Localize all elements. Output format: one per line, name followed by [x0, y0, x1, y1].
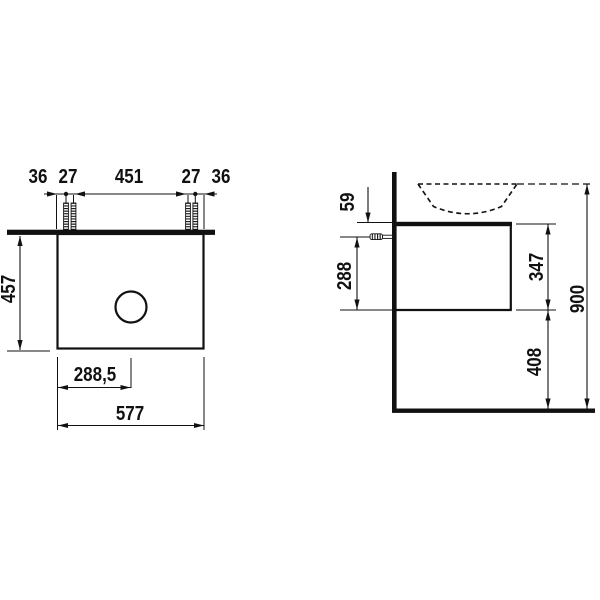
dim-dot — [64, 192, 68, 196]
arrowhead — [17, 340, 22, 350]
dim-288-5: 288,5 — [74, 365, 117, 385]
dim-288: 288 — [335, 262, 355, 290]
screw-icon — [64, 203, 69, 230]
wall — [392, 172, 397, 413]
wall-screw-icon — [370, 234, 393, 240]
arrowhead — [584, 399, 589, 409]
arrowhead — [545, 225, 550, 235]
cabinet-side-outline — [392, 222, 512, 310]
dim-347: 347 — [527, 253, 547, 281]
arrowhead — [58, 423, 68, 428]
dim-27-right: 27 — [182, 167, 201, 187]
arrowhead — [58, 385, 68, 390]
front-view — [7, 191, 217, 430]
arrowhead — [47, 191, 57, 196]
arrowhead — [545, 300, 550, 310]
dim-457: 457 — [0, 275, 19, 303]
dim-577: 577 — [116, 404, 144, 424]
dim-59: 59 — [338, 193, 358, 212]
arrowhead — [194, 423, 204, 428]
arrowhead — [545, 311, 550, 321]
side-height-dimensions — [516, 224, 556, 409]
dim-408: 408 — [525, 348, 545, 376]
floor — [392, 409, 595, 413]
arrowhead — [545, 399, 550, 409]
arrowhead — [75, 191, 85, 196]
arrowhead — [354, 238, 359, 248]
technical-drawing-page: 36 27 451 27 36 457 288,5 577 59 288 347… — [0, 0, 600, 600]
screw-icon — [71, 203, 76, 230]
faucet-hole — [116, 292, 147, 323]
arrowhead — [121, 385, 131, 390]
arrowhead — [354, 300, 359, 310]
arrowhead — [584, 185, 589, 195]
arrowhead — [365, 213, 370, 223]
dim-dot — [193, 192, 197, 196]
dim-27-left: 27 — [59, 167, 78, 187]
screw-icon — [186, 203, 191, 230]
arrowhead — [176, 191, 186, 196]
side-view — [340, 172, 595, 413]
side-top-offset-dimension — [357, 187, 392, 223]
screw-icon — [193, 203, 198, 230]
vanity-dimension-drawing — [0, 0, 600, 600]
dim-36-left: 36 — [29, 167, 48, 187]
mounting-screws — [64, 195, 198, 230]
dim-36-right: 36 — [212, 167, 231, 187]
front-top-dimension — [44, 191, 217, 229]
arrowhead — [205, 191, 215, 196]
arrowhead — [17, 236, 22, 246]
dim-451: 451 — [115, 167, 143, 187]
dim-900: 900 — [568, 285, 588, 313]
washbasin-dashed-outline — [418, 184, 517, 214]
